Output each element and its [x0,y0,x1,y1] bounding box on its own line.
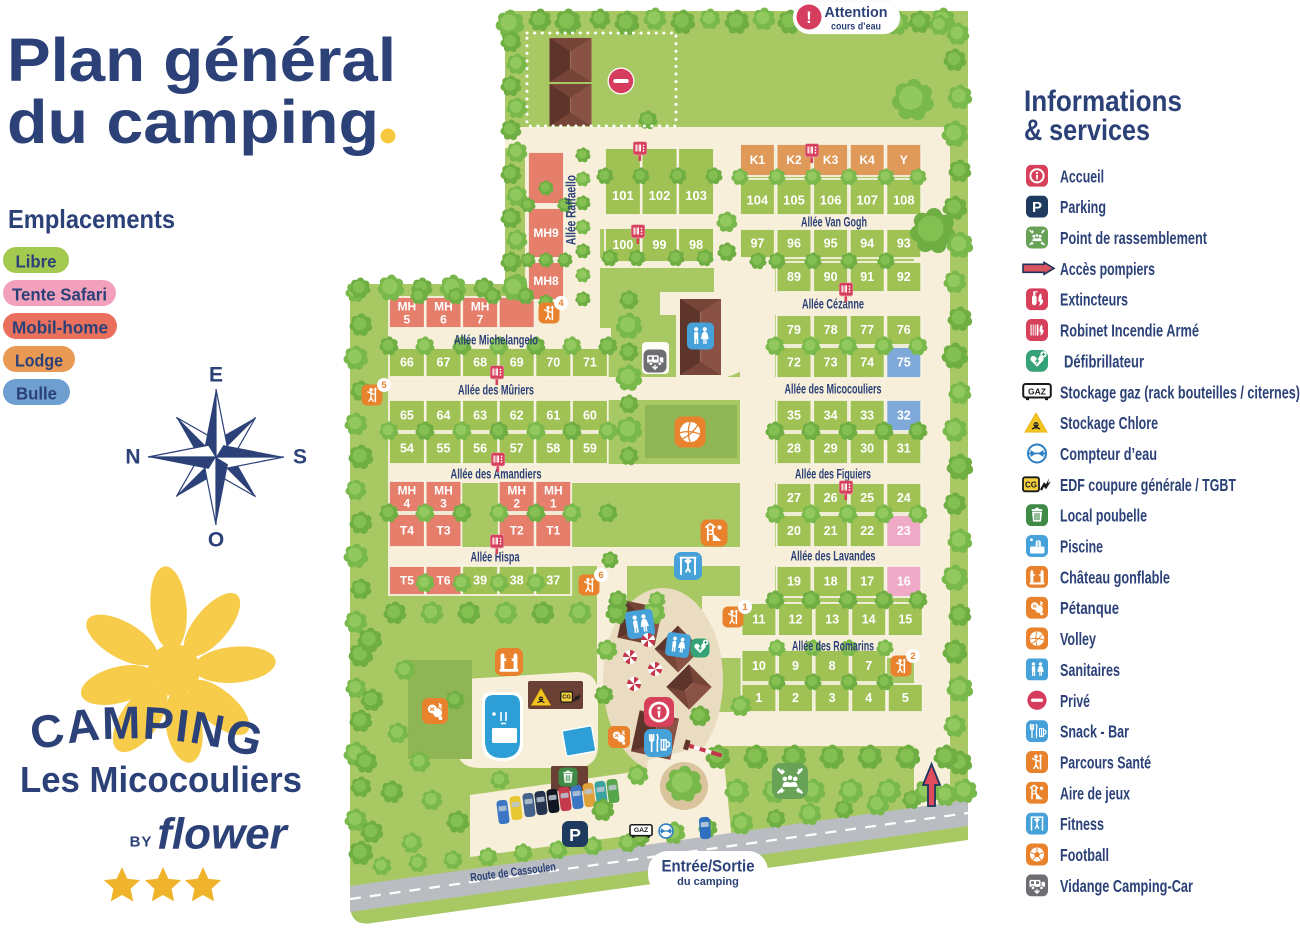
svg-text:E: E [209,364,223,387]
svg-text:K2: K2 [786,153,802,167]
svg-text:32: 32 [897,409,911,423]
svg-text:!: ! [806,8,812,27]
svg-text:Football: Football [1060,845,1109,865]
svg-text:62: 62 [510,409,524,423]
svg-text:T4: T4 [400,524,414,538]
svg-text:7: 7 [477,313,484,327]
svg-text:107: 107 [856,193,878,208]
svg-text:Allée Raffaello: Allée Raffaello [564,175,579,245]
svg-text:23: 23 [897,524,911,538]
svg-text:101: 101 [612,188,634,203]
svg-text:Emplacements: Emplacements [8,204,175,234]
svg-text:77: 77 [860,323,874,337]
svg-text:Stockage Chlore: Stockage Chlore [1060,413,1158,433]
svg-text:Piscine: Piscine [1060,537,1103,557]
svg-text:94: 94 [860,237,874,251]
svg-text:63: 63 [473,409,487,423]
svg-text:Mobil-home: Mobil-home [12,318,108,338]
svg-text:25: 25 [860,491,874,505]
svg-text:4: 4 [558,298,564,309]
svg-text:Vidange Camping-Car: Vidange Camping-Car [1060,876,1193,896]
svg-text:Local poubelle: Local poubelle [1060,506,1147,526]
svg-text:55: 55 [437,442,451,456]
svg-text:35: 35 [787,409,801,423]
svg-text:26: 26 [824,491,838,505]
svg-text:98: 98 [689,238,703,252]
svg-text:5: 5 [902,691,909,705]
svg-text:91: 91 [860,270,874,284]
svg-text:8: 8 [829,659,836,673]
svg-text:1: 1 [742,602,748,613]
svg-text:75: 75 [897,356,911,370]
svg-text:68: 68 [473,356,487,370]
svg-text:59: 59 [583,442,597,456]
svg-text:2: 2 [513,497,520,511]
svg-text:38: 38 [510,574,524,588]
svg-text:57: 57 [510,442,524,456]
svg-text:& services: & services [1024,114,1150,147]
svg-text:58: 58 [546,442,560,456]
svg-text:29: 29 [824,442,838,456]
svg-text:74: 74 [860,356,874,370]
svg-text:28: 28 [787,442,801,456]
svg-text:K4: K4 [860,153,876,167]
svg-text:60: 60 [583,409,597,423]
svg-text:Parking: Parking [1060,197,1106,217]
svg-text:T5: T5 [400,574,414,588]
svg-text:102: 102 [649,188,671,203]
svg-text:MH: MH [471,300,490,314]
svg-text:89: 89 [787,270,801,284]
svg-text:Allée des Figuiers: Allée des Figuiers [795,467,871,482]
svg-text:30: 30 [860,442,874,456]
svg-text:K1: K1 [750,153,766,167]
svg-text:Fitness: Fitness [1060,814,1104,834]
svg-text:T6: T6 [436,574,450,588]
svg-text:MH9: MH9 [533,226,559,240]
svg-text:14: 14 [862,613,876,627]
svg-text:Lodge: Lodge [15,351,63,371]
svg-text:70: 70 [546,356,560,370]
svg-text:Pétanque: Pétanque [1060,598,1119,618]
svg-text:2: 2 [792,691,799,705]
svg-text:22: 22 [860,524,874,538]
svg-text:11: 11 [752,613,765,627]
svg-text:6: 6 [440,313,447,327]
svg-text:105: 105 [783,193,805,208]
svg-text:13: 13 [825,613,839,627]
svg-text:Accès pompiers: Accès pompiers [1060,259,1155,279]
svg-text:Robinet Incendie Armé: Robinet Incendie Armé [1060,321,1199,341]
svg-text:93: 93 [897,237,911,251]
svg-text:Les Micocouliers: Les Micocouliers [20,759,302,800]
svg-text:16: 16 [897,575,911,589]
svg-text:Allée Michelangelo: Allée Michelangelo [454,333,538,348]
svg-text:27: 27 [787,491,801,505]
svg-text:31: 31 [897,442,911,456]
svg-text:106: 106 [820,193,842,208]
svg-text:17: 17 [860,575,874,589]
svg-text:67: 67 [437,356,451,370]
svg-text:108: 108 [893,193,915,208]
svg-text:95: 95 [824,237,838,251]
svg-text:Y: Y [900,153,908,167]
svg-text:104: 104 [747,193,769,208]
svg-text:K3: K3 [823,153,839,167]
svg-text:MH: MH [398,484,417,498]
svg-text:73: 73 [824,356,838,370]
svg-text:Allée Cézanne: Allée Cézanne [802,297,864,312]
svg-text:du camping: du camping [7,88,379,156]
svg-text:96: 96 [787,237,801,251]
svg-text:76: 76 [897,323,911,337]
svg-text:N: N [125,446,140,469]
svg-text:1: 1 [755,691,762,705]
svg-text:64: 64 [437,409,451,423]
svg-text:Tente Safari: Tente Safari [12,285,107,305]
svg-text:10: 10 [752,659,766,673]
svg-text:92: 92 [897,270,911,284]
svg-text:90: 90 [824,270,838,284]
svg-text:Défibrillateur: Défibrillateur [1064,351,1144,371]
svg-text:cours d’eau: cours d’eau [831,21,881,33]
svg-text:39: 39 [473,574,487,588]
svg-text:19: 19 [787,575,801,589]
svg-text:97: 97 [750,237,764,251]
svg-text:Attention: Attention [825,5,888,21]
svg-text:3: 3 [440,497,447,511]
svg-text:18: 18 [824,575,838,589]
svg-text:du camping: du camping [677,876,739,888]
svg-text:T1: T1 [546,524,560,538]
svg-text:21: 21 [824,524,838,538]
svg-text:Compteur d’eau: Compteur d’eau [1060,444,1157,464]
svg-text:78: 78 [824,323,838,337]
svg-text:103: 103 [685,188,707,203]
svg-text:Allée des Micocouliers: Allée des Micocouliers [785,382,882,397]
svg-text:MH: MH [544,484,563,498]
svg-text:T2: T2 [510,524,524,538]
svg-text:Allée des Romarins: Allée des Romarins [792,639,874,654]
svg-text:72: 72 [787,356,801,370]
svg-text:54: 54 [400,442,414,456]
svg-text:61: 61 [546,409,560,423]
svg-text:MH: MH [434,484,453,498]
svg-text:Allée des Amandiers: Allée des Amandiers [451,467,542,482]
svg-text:5: 5 [404,313,411,327]
svg-text:56: 56 [473,442,487,456]
svg-text:1: 1 [550,497,557,511]
svg-text:Bulle: Bulle [16,384,57,404]
svg-text:79: 79 [787,323,801,337]
svg-text:7: 7 [865,659,872,673]
svg-text:24: 24 [897,491,911,505]
svg-text:5: 5 [381,380,387,391]
svg-text:6: 6 [598,570,603,581]
svg-text:Allée Van Gogh: Allée Van Gogh [801,215,867,230]
svg-text:2: 2 [910,651,915,662]
svg-text:Libre: Libre [16,252,57,272]
svg-text:flower: flower [157,810,289,859]
svg-text:69: 69 [510,356,524,370]
svg-text:Stockage gaz (rack bouteilles: Stockage gaz (rack bouteilles / citernes… [1060,382,1300,402]
svg-text:Sanitaires: Sanitaires [1060,660,1120,680]
svg-text:65: 65 [400,409,414,423]
svg-text:Point de rassemblement: Point de rassemblement [1060,228,1207,248]
svg-text:Aire de jeux: Aire de jeux [1060,783,1130,803]
svg-text:Entrée/Sortie: Entrée/Sortie [662,857,755,876]
svg-text:T3: T3 [436,524,450,538]
svg-text:MH: MH [507,484,526,498]
svg-text:100: 100 [612,238,633,252]
svg-text:O: O [208,529,224,552]
svg-text:3: 3 [829,691,836,705]
svg-text:Accueil: Accueil [1060,166,1104,186]
svg-text:37: 37 [546,574,560,588]
svg-text:Allée des Lavandes: Allée des Lavandes [791,549,876,564]
svg-text:MH8: MH8 [533,274,559,288]
svg-text:S: S [293,446,307,469]
svg-text:MH: MH [434,300,453,314]
svg-text:9: 9 [792,659,799,673]
svg-text:66: 66 [400,356,414,370]
svg-text:4: 4 [865,691,872,705]
svg-text:33: 33 [860,409,874,423]
svg-text:Extincteurs: Extincteurs [1060,290,1128,310]
svg-text:34: 34 [824,409,838,423]
svg-text:Parcours Santé: Parcours Santé [1060,752,1151,772]
svg-text:15: 15 [898,613,912,627]
svg-text:99: 99 [653,238,667,252]
svg-text:BY: BY [130,834,153,851]
svg-text:Snack - Bar: Snack - Bar [1060,722,1129,742]
svg-text:Plan général: Plan général [7,26,396,94]
svg-text:4: 4 [404,497,411,511]
svg-text:Château gonflable: Château gonflable [1060,567,1170,587]
svg-text:Volley: Volley [1060,629,1096,649]
svg-text:Privé: Privé [1060,691,1090,711]
svg-text:12: 12 [789,613,803,627]
svg-text:EDF coupure générale / TGBT: EDF coupure générale / TGBT [1060,475,1236,495]
svg-text:Allée Hispa: Allée Hispa [471,550,520,565]
svg-text:71: 71 [583,356,597,370]
svg-text:20: 20 [787,524,801,538]
